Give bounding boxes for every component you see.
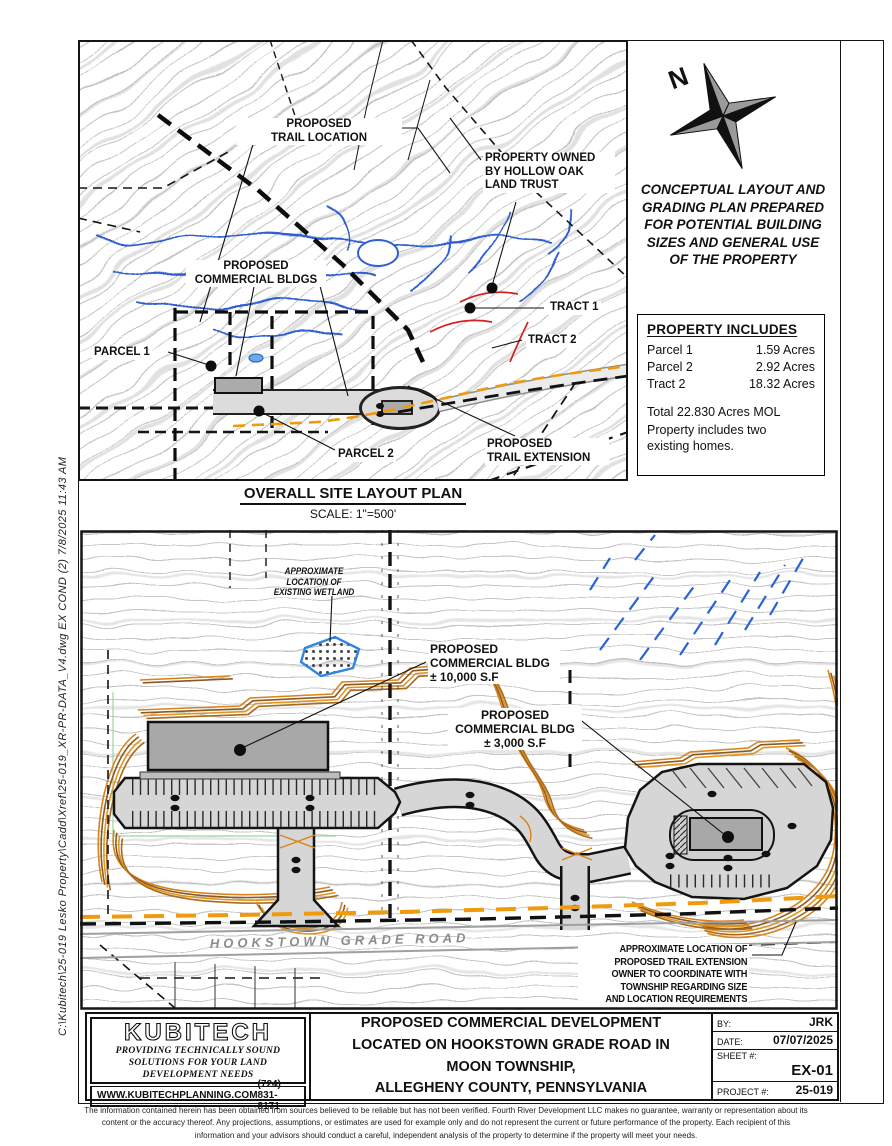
north-arrow: N: [648, 52, 798, 178]
bldg-3000sf-hatch: [674, 816, 687, 854]
label-trail-extension: PROPOSED TRAIL EXTENSION: [485, 438, 609, 465]
file-path-note: C:\Kubitech\25-019 Lesko Property\Cadd\X…: [57, 294, 69, 1036]
small-pond: [249, 354, 263, 362]
by-row: BY: JRK: [713, 1014, 837, 1032]
property-row: Parcel 1 1.59 Acres: [647, 342, 815, 359]
property-row-value: 2.92 Acres: [756, 359, 815, 376]
by-label: BY:: [717, 1019, 731, 1029]
label-tract2: TRACT 2: [526, 334, 579, 348]
kubitech-logo: KUBITECH: [98, 1019, 298, 1045]
stream-dashes: [590, 535, 805, 660]
sheet-row: SHEET #: EX-01: [713, 1050, 837, 1082]
bldg-parcel1: [215, 378, 262, 393]
property-includes-box: PROPERTY INCLUDES Parcel 1 1.59 Acres Pa…: [637, 314, 825, 476]
conceptual-note: CONCEPTUAL LAYOUT AND GRADING PLAN PREPA…: [629, 181, 837, 269]
property-total: Total 22.830 Acres MOL: [647, 404, 815, 420]
sheet-label: SHEET #:: [717, 1051, 833, 1061]
sheet-value: EX-01: [717, 1062, 833, 1079]
by-value: JRK: [809, 1015, 833, 1029]
label-tract1: TRACT 1: [548, 301, 601, 315]
sheet-inner-border: [840, 40, 841, 1102]
date-value: 07/07/2025: [773, 1033, 833, 1047]
label-commercial-bldgs: PROPOSED COMMERCIAL BLDGS: [186, 260, 326, 287]
overview-map: PROPOSED TRAIL LOCATION PROPERTY OWNED B…: [78, 40, 628, 481]
label-wetland: APPROXIMATE LOCATION OF EXISTING WETLAND: [271, 566, 357, 598]
info-cell: BY: JRK DATE: 07/07/2025 SHEET #: EX-01 …: [713, 1014, 837, 1099]
label-trail-location: PROPOSED TRAIL LOCATION: [236, 118, 402, 145]
property-includes-title: PROPERTY INCLUDES: [647, 322, 815, 337]
date-label: DATE:: [717, 1037, 743, 1047]
label-hollow-oak: PROPERTY OWNED BY HOLLOW OAK LAND TRUST: [483, 152, 615, 193]
label-bldg-3000: PROPOSED COMMERCIAL BLDG ± 3,000 S.F: [448, 708, 582, 750]
site-plan-map: HOOKSTOWN GRADE ROAD APPROXIMATE LOCATIO…: [80, 530, 838, 1010]
label-trail-note: APPROXIMATE LOCATION OF PROPOSED TRAIL E…: [578, 944, 749, 1007]
property-row-label: Tract 2: [647, 376, 685, 393]
overview-title: OVERALL SITE LAYOUT PLAN: [240, 485, 466, 505]
logo-cell: KUBITECH PROVIDING TECHNICALLY SOUND SOL…: [87, 1014, 309, 1099]
wetland-polygon: [301, 637, 359, 676]
property-note: Property includes two existing homes.: [647, 422, 815, 455]
property-row-value: 18.32 Acres: [749, 376, 815, 393]
property-row-label: Parcel 1: [647, 342, 693, 359]
plan-sheet: C:\Kubitech\25-019 Lesko Property\Cadd\X…: [0, 0, 892, 1146]
road-name: HOOKSTOWN GRADE ROAD: [210, 930, 470, 951]
overview-caption: OVERALL SITE LAYOUT PLAN SCALE: 1"=500': [78, 485, 628, 521]
project-value: 25-019: [796, 1083, 833, 1097]
bldg-10000sf-walk: [140, 772, 340, 779]
site-plan-canvas: HOOKSTOWN GRADE ROAD: [80, 530, 838, 1010]
overview-map-canvas: [78, 40, 628, 481]
north-letter: N: [664, 61, 692, 96]
logo-box: KUBITECH PROVIDING TECHNICALLY SOUND SOL…: [90, 1017, 306, 1084]
logo-tagline: PROVIDING TECHNICALLY SOUND SOLUTIONS FO…: [116, 1046, 281, 1082]
title-block: KUBITECH PROVIDING TECHNICALLY SOUND SOL…: [85, 1012, 839, 1101]
logo-text: KUBITECH: [124, 1019, 272, 1045]
logo-contact-row: WWW.KUBITECHPLANNING.COM (724) 831-8171: [90, 1086, 306, 1107]
website-link[interactable]: WWW.KUBITECHPLANNING.COM: [97, 1090, 258, 1101]
disclaimer-text: The information contained herein has bee…: [6, 1105, 886, 1142]
project-label: PROJECT #:: [717, 1087, 769, 1097]
property-row: Parcel 2 2.92 Acres: [647, 359, 815, 376]
label-bldg-10000: PROPOSED COMMERCIAL BLDG ± 10,000 S.F: [428, 642, 560, 684]
property-row-label: Parcel 2: [647, 359, 693, 376]
overview-scale: SCALE: 1"=500': [78, 507, 628, 521]
label-parcel1: PARCEL 1: [92, 346, 152, 360]
project-title: PROPOSED COMMERCIAL DEVELOPMENT LOCATED …: [309, 1014, 713, 1099]
pond: [358, 240, 398, 266]
property-row-value: 1.59 Acres: [756, 342, 815, 359]
project-row: PROJECT #: 25-019: [713, 1082, 837, 1099]
date-row: DATE: 07/07/2025: [713, 1032, 837, 1050]
label-parcel2: PARCEL 2: [336, 448, 396, 462]
property-row: Tract 2 18.32 Acres: [647, 376, 815, 393]
